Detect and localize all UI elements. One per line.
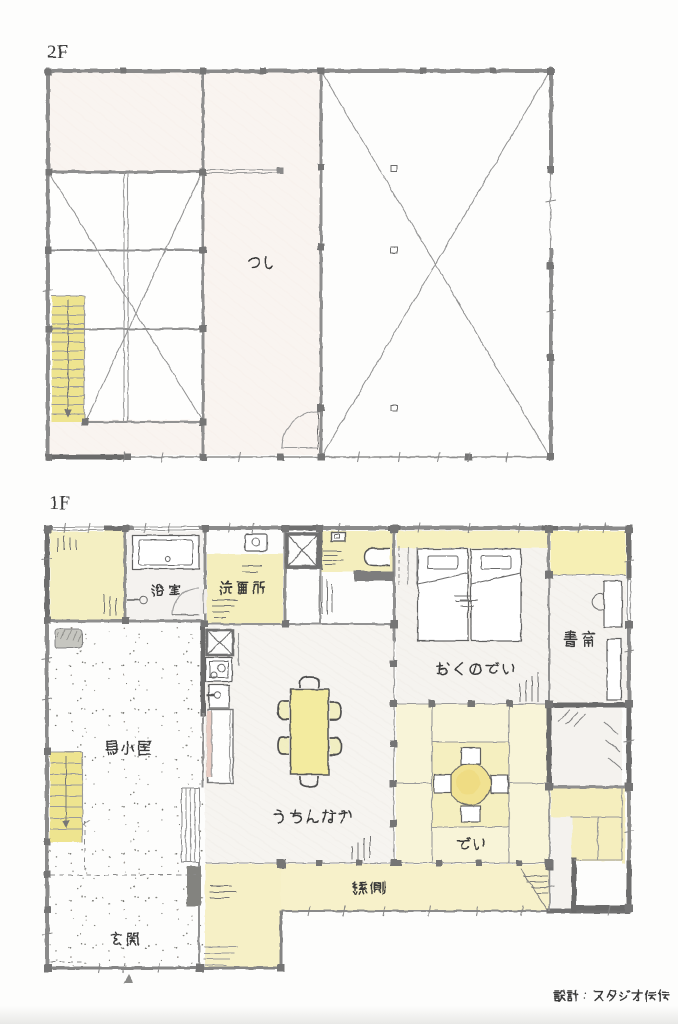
svg-text:1F: 1F bbox=[49, 492, 70, 514]
svg-text:2F: 2F bbox=[47, 41, 68, 63]
